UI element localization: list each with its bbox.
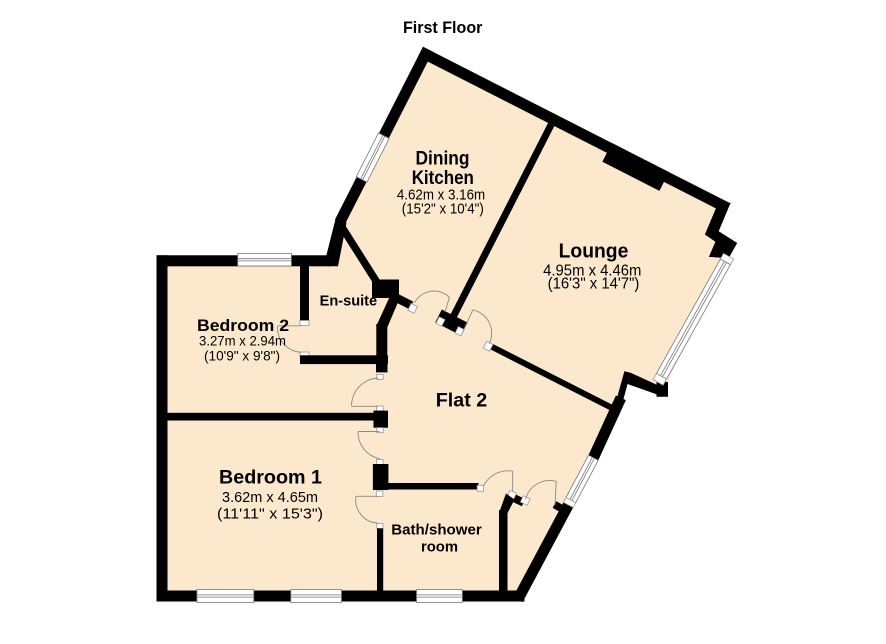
svg-text:Lounge: Lounge [559,241,629,263]
svg-text:(16'3" x 14'7"): (16'3" x 14'7") [548,276,640,293]
svg-text:room: room [421,540,458,556]
svg-text:Bedroom 1: Bedroom 1 [219,468,322,489]
svg-text:(11'11" x 15'3"): (11'11" x 15'3") [217,507,323,523]
svg-text:3.62m x 4.65m: 3.62m x 4.65m [222,490,318,506]
svg-text:En-suite: En-suite [320,294,378,310]
svg-text:Flat 2: Flat 2 [436,390,488,412]
svg-text:Bedroom 2: Bedroom 2 [197,316,289,335]
svg-text:(15'2" x 10'4"): (15'2" x 10'4") [402,201,484,218]
svg-text:(10'9" x 9'8"): (10'9" x 9'8") [204,349,280,364]
svg-text:3.27m x 2.94m: 3.27m x 2.94m [199,334,286,349]
svg-text:Dining: Dining [416,149,470,170]
svg-text:First Floor: First Floor [403,19,483,37]
svg-text:Bath/shower: Bath/shower [391,523,482,539]
